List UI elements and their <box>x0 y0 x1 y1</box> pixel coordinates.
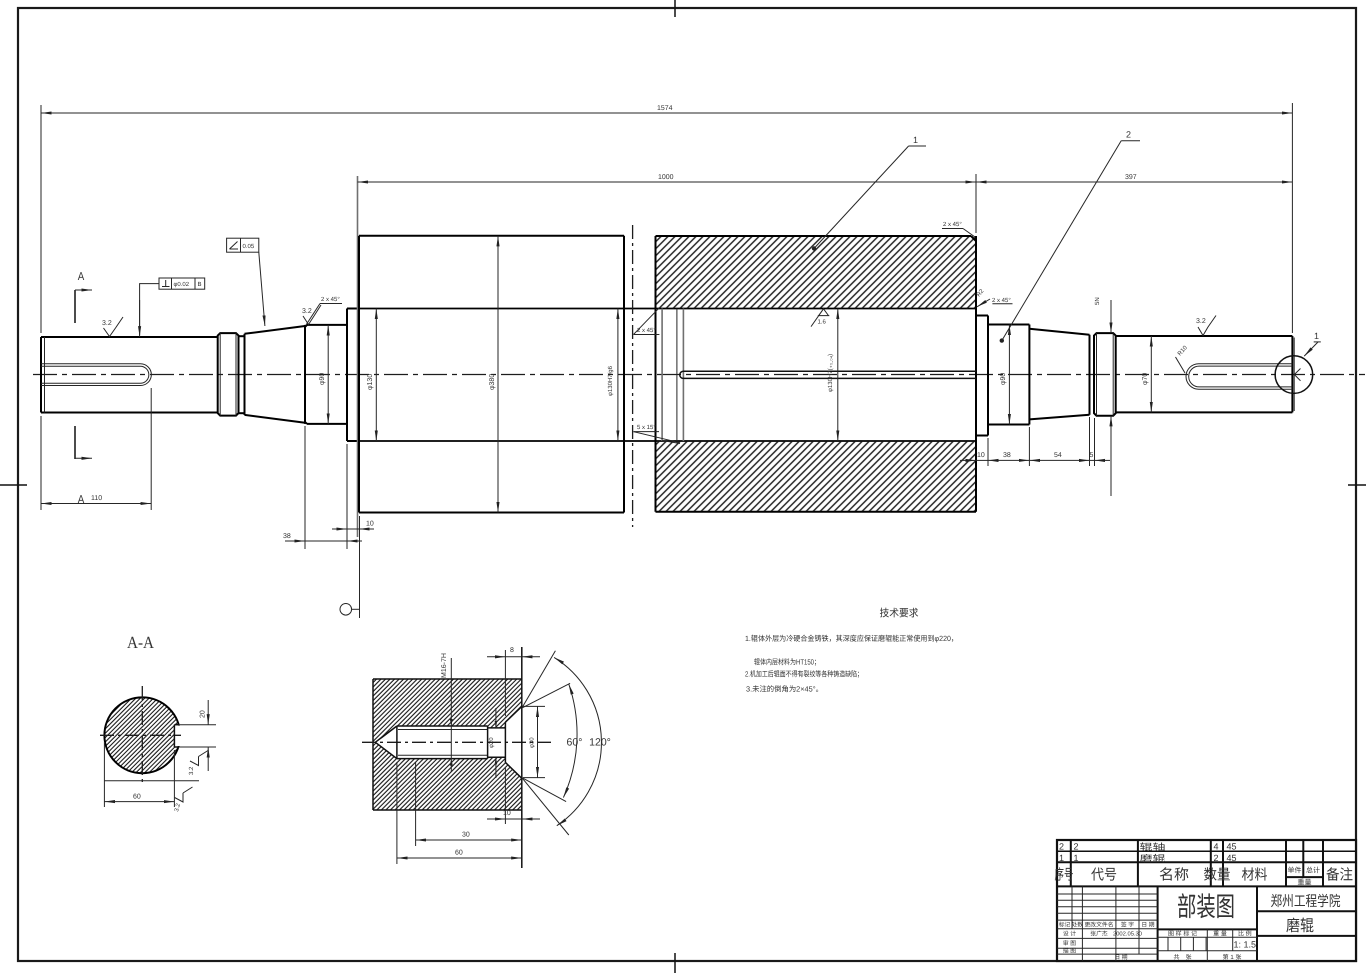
svg-text:A: A <box>78 494 85 506</box>
svg-text:φ380: φ380 <box>489 374 496 390</box>
svg-text:10: 10 <box>503 810 511 817</box>
svg-text:10: 10 <box>366 521 374 528</box>
svg-text:8: 8 <box>510 647 514 654</box>
svg-text:更改文件名: 更改文件名 <box>1085 922 1114 929</box>
svg-text:共 张: 共 张 <box>1173 954 1191 961</box>
svg-text:2: 2 <box>1074 842 1079 852</box>
svg-text:3.2: 3.2 <box>1196 318 1206 325</box>
svg-text:技术要求: 技术要求 <box>880 608 919 620</box>
svg-text:60: 60 <box>455 850 463 857</box>
svg-text:3.2: 3.2 <box>102 320 112 327</box>
svg-text:审 图: 审 图 <box>1063 940 1076 947</box>
svg-text:1: 1 <box>1059 853 1064 863</box>
svg-text:重 量: 重 量 <box>1213 930 1227 937</box>
svg-text:φ70: φ70 <box>1142 373 1149 385</box>
svg-text:54: 54 <box>1054 452 1062 459</box>
svg-text:1.6: 1.6 <box>818 319 827 326</box>
svg-text:总计: 总计 <box>1306 867 1320 875</box>
svg-text:2: 2 <box>1059 842 1064 852</box>
svg-text:20: 20 <box>200 710 207 718</box>
svg-text:2: 2 <box>1214 853 1219 863</box>
svg-text:3.未注的倒角为2×45°。: 3.未注的倒角为2×45°。 <box>746 685 823 694</box>
svg-text:材料: 材料 <box>1242 867 1268 884</box>
svg-text:4: 4 <box>1214 842 1219 852</box>
svg-text:2: 2 <box>1126 130 1131 140</box>
svg-text:数量: 数量 <box>1204 867 1231 884</box>
svg-text:1574: 1574 <box>657 105 673 112</box>
svg-text:5 x 15°: 5 x 15° <box>637 424 656 431</box>
svg-text:φ90: φ90 <box>1000 373 1007 385</box>
svg-text:0.05: 0.05 <box>243 243 255 250</box>
svg-text:φ130H7/g6: φ130H7/g6 <box>607 365 614 396</box>
svg-text:2 x 45°: 2 x 45° <box>992 297 1011 304</box>
svg-text:1: 1 <box>913 135 918 145</box>
svg-text:设 计: 设 计 <box>1063 931 1076 938</box>
svg-text:处数: 处数 <box>1071 922 1083 929</box>
svg-text:辊轴: 辊轴 <box>1140 842 1166 852</box>
svg-text:代号: 代号 <box>1091 867 1117 884</box>
svg-text:比 例: 比 例 <box>1238 929 1252 937</box>
svg-text:5N: 5N <box>1094 297 1101 305</box>
svg-text:辊体内层材料为HT150；: 辊体内层材料为HT150； <box>754 658 820 667</box>
svg-text:1: 1 <box>1074 853 1079 863</box>
svg-text:2 x 45°: 2 x 45° <box>321 296 340 303</box>
svg-text:名称: 名称 <box>1159 867 1189 884</box>
svg-text:φ90: φ90 <box>319 373 326 385</box>
svg-text:5: 5 <box>1090 452 1094 459</box>
svg-text:签 字: 签 字 <box>1121 922 1134 929</box>
svg-text:日 期: 日 期 <box>1114 954 1127 961</box>
svg-text:45: 45 <box>1227 853 1237 863</box>
svg-text:重量: 重量 <box>1298 879 1312 887</box>
svg-text:第 1 张: 第 1 张 <box>1223 953 1242 961</box>
svg-text:3.2: 3.2 <box>302 308 312 315</box>
svg-text:φ0.02: φ0.02 <box>174 281 190 288</box>
svg-text:部装图: 部装图 <box>1177 892 1235 922</box>
svg-text:30: 30 <box>462 832 470 839</box>
svg-text:A: A <box>78 271 85 283</box>
svg-text:397: 397 <box>1125 174 1137 181</box>
svg-text:备注: 备注 <box>1326 867 1353 884</box>
svg-text:M16-7H: M16-7H <box>441 653 448 678</box>
svg-text:φ130: φ130 <box>367 374 374 390</box>
svg-text:110: 110 <box>91 495 102 502</box>
svg-text:1.辊体外层为冷硬合金铸铁，其深度应保证磨辊能正常使用到φ2: 1.辊体外层为冷硬合金铸铁，其深度应保证磨辊能正常使用到φ220， <box>745 634 958 643</box>
svg-text:120°: 120° <box>589 737 611 749</box>
svg-text:45: 45 <box>1227 842 1237 852</box>
svg-text:60°: 60° <box>567 737 583 749</box>
svg-text:磨辊: 磨辊 <box>1140 853 1166 863</box>
svg-text:38: 38 <box>1003 452 1011 459</box>
svg-text:A-A: A-A <box>127 633 155 652</box>
svg-text:张广杰: 张广杰 <box>1090 931 1108 938</box>
svg-text:1000: 1000 <box>658 174 674 181</box>
svg-text:φ20: φ20 <box>488 737 495 748</box>
svg-text:郑州工程学院: 郑州工程学院 <box>1271 893 1341 910</box>
svg-text:φ30: φ30 <box>529 737 536 748</box>
svg-text:日 期: 日 期 <box>1141 922 1154 929</box>
svg-text:描 图: 描 图 <box>1063 947 1076 954</box>
svg-text:序号: 序号 <box>1055 867 1074 884</box>
svg-text:3.2: 3.2 <box>188 766 195 775</box>
svg-text:φ130H7(₊₀ˍ₀₄): φ130H7(₊₀ˍ₀₄) <box>827 354 834 392</box>
svg-text:60: 60 <box>133 794 141 801</box>
svg-text:2 x 45°: 2 x 45° <box>943 221 962 228</box>
svg-text:标记: 标记 <box>1059 922 1071 929</box>
svg-text:2002.05.30: 2002.05.30 <box>1113 931 1142 938</box>
svg-text:2.机加工后辊面不得有裂纹等各种铸造缺陷；: 2.机加工后辊面不得有裂纹等各种铸造缺陷； <box>745 670 863 679</box>
svg-text:10: 10 <box>977 452 985 459</box>
svg-text:1: 1.5: 1: 1.5 <box>1234 940 1257 950</box>
svg-text:图 样 标 记: 图 样 标 记 <box>1168 929 1197 937</box>
svg-text:1: 1 <box>1314 331 1319 341</box>
svg-text:单件: 单件 <box>1288 867 1302 875</box>
svg-text:38: 38 <box>283 533 291 540</box>
svg-text:磨辊: 磨辊 <box>1286 917 1314 935</box>
svg-text:B: B <box>198 281 202 288</box>
